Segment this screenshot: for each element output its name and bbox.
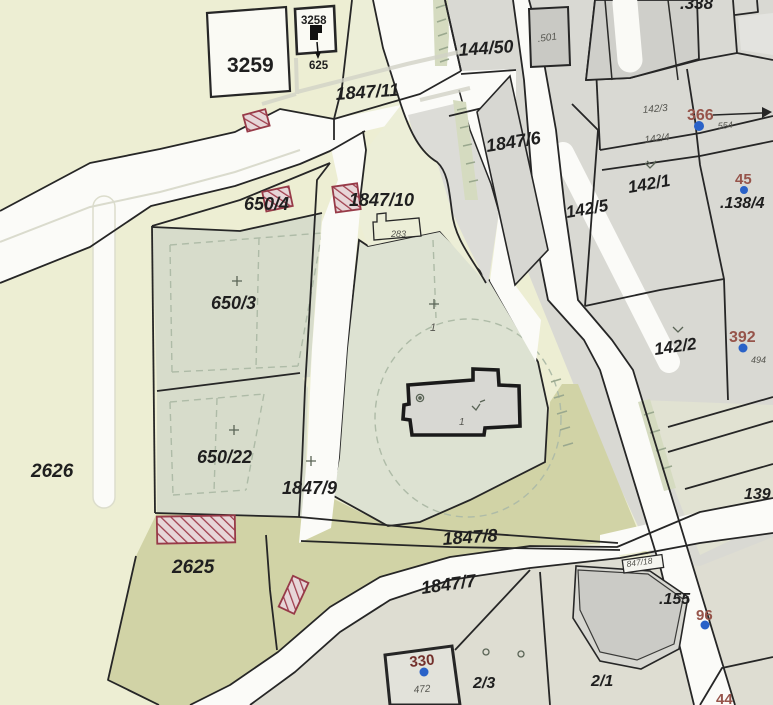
svg-text:650/3: 650/3 <box>211 293 256 313</box>
svg-text:472: 472 <box>413 684 431 696</box>
svg-text:2626: 2626 <box>30 461 74 482</box>
svg-text:283: 283 <box>390 229 406 239</box>
svg-text:142/3: 142/3 <box>642 103 668 116</box>
svg-text:96: 96 <box>696 607 713 624</box>
svg-text:144/50: 144/50 <box>458 36 514 60</box>
svg-text:1: 1 <box>430 322 436 334</box>
svg-text:650/22: 650/22 <box>197 447 252 467</box>
svg-text:3259: 3259 <box>227 54 274 77</box>
svg-text:366: 366 <box>687 107 714 124</box>
svg-text:139: 139 <box>744 486 771 503</box>
svg-text:494: 494 <box>751 355 766 365</box>
svg-text:.155: .155 <box>659 591 691 608</box>
svg-text:2/1: 2/1 <box>590 673 613 690</box>
svg-text:1: 1 <box>459 417 465 428</box>
svg-text:2625: 2625 <box>171 557 215 578</box>
svg-text:.138/4: .138/4 <box>720 195 765 212</box>
svg-text:625: 625 <box>309 60 329 72</box>
svg-text:1847/9: 1847/9 <box>282 478 337 498</box>
svg-text:.338: .338 <box>680 0 714 13</box>
svg-text:2/3: 2/3 <box>472 675 495 692</box>
svg-text:330: 330 <box>409 651 436 671</box>
svg-text:1847/8: 1847/8 <box>442 525 498 549</box>
svg-text:554: 554 <box>717 120 733 131</box>
svg-text:1847/10: 1847/10 <box>349 190 414 210</box>
svg-text:44: 44 <box>716 691 733 705</box>
svg-text:45: 45 <box>735 171 752 188</box>
svg-text:650/4: 650/4 <box>244 194 289 214</box>
svg-text:3258: 3258 <box>301 15 327 27</box>
svg-text:392: 392 <box>729 329 756 346</box>
